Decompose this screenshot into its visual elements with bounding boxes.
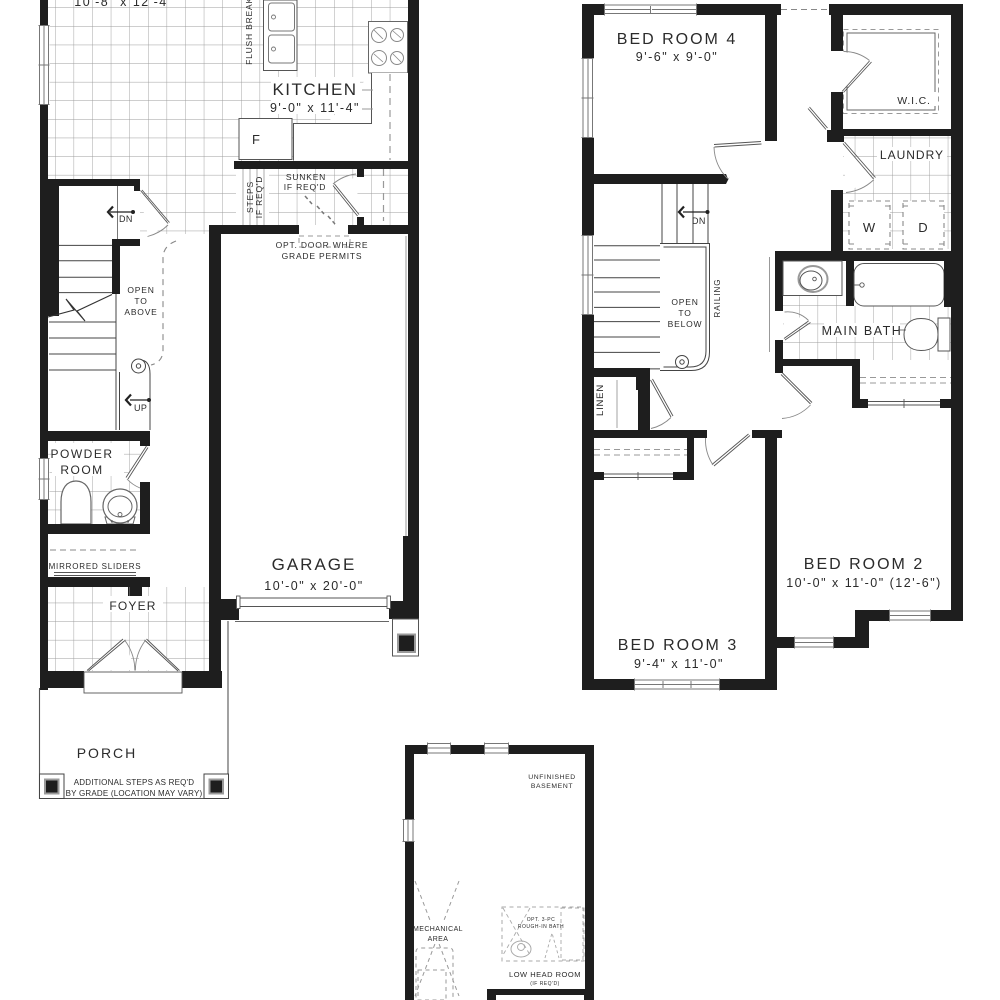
svg-text:BED ROOM 4: BED ROOM 4 — [617, 31, 737, 48]
svg-text:10'-0" x 11'-0" (12'-6"): 10'-0" x 11'-0" (12'-6") — [786, 576, 942, 590]
svg-text:SUNKEN: SUNKEN — [286, 172, 326, 182]
svg-text:LAUNDRY: LAUNDRY — [880, 148, 944, 162]
svg-text:UNFINISHED: UNFINISHED — [528, 774, 576, 781]
svg-text:RAILING: RAILING — [713, 278, 722, 317]
svg-text:BED ROOM 2: BED ROOM 2 — [804, 556, 924, 573]
svg-text:W.I.C.: W.I.C. — [897, 95, 930, 107]
svg-text:OPT. DOOR WHERE: OPT. DOOR WHERE — [276, 240, 369, 250]
svg-text:D: D — [918, 220, 927, 235]
svg-text:OPEN: OPEN — [671, 297, 698, 307]
svg-text:10'-8" x 12'-4": 10'-8" x 12'-4" — [74, 0, 173, 9]
svg-text:MIRRORED SLIDERS: MIRRORED SLIDERS — [49, 562, 142, 571]
svg-text:IF REQ'D: IF REQ'D — [284, 182, 327, 192]
svg-text:LOW HEAD ROOM: LOW HEAD ROOM — [509, 970, 581, 979]
svg-text:ROUGH-IN BATH: ROUGH-IN BATH — [518, 924, 564, 930]
svg-text:DN: DN — [692, 216, 706, 226]
svg-text:UP: UP — [134, 403, 147, 413]
svg-text:AREA: AREA — [428, 936, 449, 943]
svg-text:TO: TO — [678, 308, 691, 318]
svg-text:BASEMENT: BASEMENT — [531, 783, 573, 790]
svg-text:LINEN: LINEN — [595, 384, 606, 416]
svg-text:9'-6" x 9'-0": 9'-6" x 9'-0" — [636, 50, 718, 64]
svg-text:BED ROOM 3: BED ROOM 3 — [618, 637, 738, 654]
svg-text:9'-4" x 11'-0": 9'-4" x 11'-0" — [634, 657, 724, 671]
svg-text:BY GRADE (LOCATION MAY VARY): BY GRADE (LOCATION MAY VARY) — [66, 789, 203, 798]
svg-text:KITCHEN: KITCHEN — [272, 80, 357, 99]
svg-text:BELOW: BELOW — [668, 319, 703, 329]
svg-text:PORCH: PORCH — [77, 745, 138, 761]
svg-text:GRADE PERMITS: GRADE PERMITS — [282, 251, 363, 261]
svg-text:ABOVE: ABOVE — [124, 307, 157, 317]
svg-text:W: W — [863, 220, 876, 235]
svg-text:DN: DN — [119, 214, 133, 224]
svg-text:POWDER: POWDER — [51, 447, 114, 461]
svg-text:9'-0" x 11'-4": 9'-0" x 11'-4" — [270, 101, 360, 115]
svg-text:IF REQ'D: IF REQ'D — [254, 176, 264, 219]
svg-text:OPT. 3-PC: OPT. 3-PC — [527, 917, 555, 923]
svg-text:ADDITIONAL STEPS AS REQ'D: ADDITIONAL STEPS AS REQ'D — [74, 778, 195, 787]
svg-text:GARAGE: GARAGE — [272, 555, 357, 574]
svg-text:F: F — [252, 132, 260, 147]
svg-text:(IF REQ'D): (IF REQ'D) — [530, 981, 560, 987]
svg-text:FLUSH BREAK: FLUSH BREAK — [244, 0, 254, 65]
svg-text:MECHANICAL: MECHANICAL — [413, 926, 463, 933]
svg-text:OPEN: OPEN — [127, 285, 154, 295]
svg-text:TO: TO — [134, 296, 147, 306]
svg-text:FOYER: FOYER — [109, 599, 156, 613]
svg-text:10'-0" x 20'-0": 10'-0" x 20'-0" — [264, 579, 363, 593]
svg-text:ROOM: ROOM — [60, 463, 103, 477]
svg-text:MAIN BATH: MAIN BATH — [822, 324, 903, 338]
